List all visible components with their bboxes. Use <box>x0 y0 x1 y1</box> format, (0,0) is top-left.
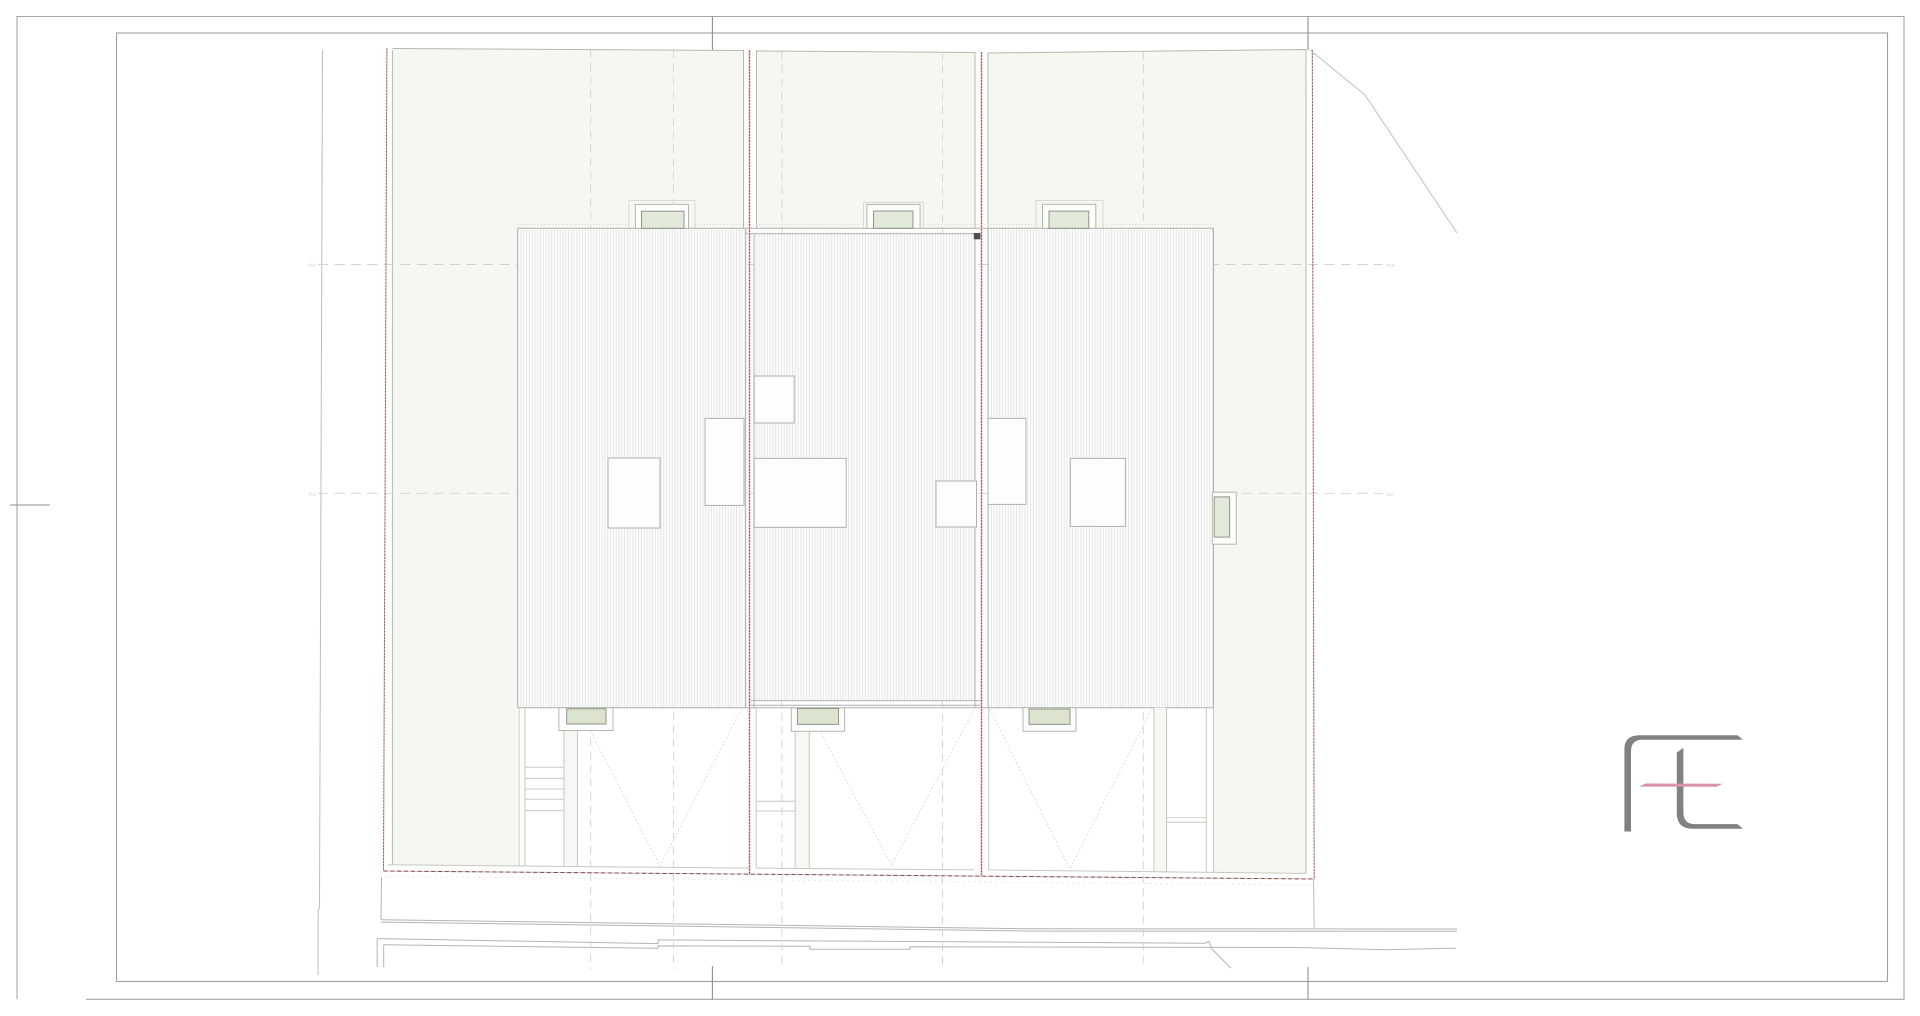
svg-text:0-1: 0-1 <box>309 492 316 497</box>
svg-text:J0A: J0A <box>1386 492 1394 497</box>
svg-text:0-0: 0-0 <box>309 263 316 268</box>
svg-text:TCC: TCC <box>1386 263 1396 268</box>
